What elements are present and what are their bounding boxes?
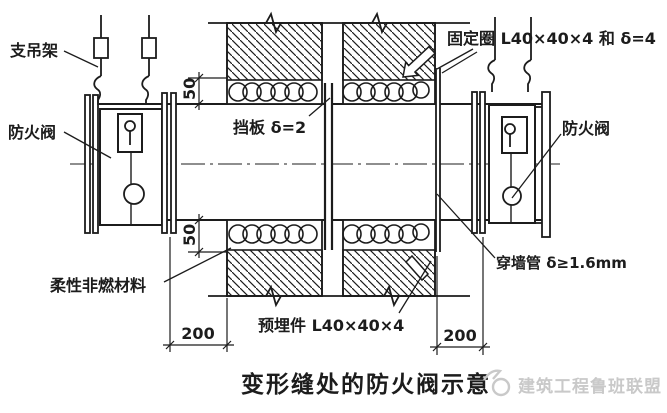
leader-hanger [64, 51, 98, 67]
flange [171, 93, 176, 233]
hanger-rod [142, 15, 156, 105]
flange [480, 92, 485, 233]
label-fire-damper-left: 防火阀 [8, 123, 56, 142]
fire-damper-left-assembly [85, 93, 176, 233]
label-fire-damper-right: 防火阀 [562, 119, 610, 138]
label-wall-pipe: 穿墙管 δ≥1.6mm [496, 254, 627, 272]
baffle-plate [324, 83, 333, 250]
fire-damper-diagram: 50 50 200 200 支吊架 防火阀 挡板 δ=2 固定圈 L40 [0, 0, 667, 413]
keyhole-icon [125, 121, 135, 131]
wall-hatch [227, 250, 322, 296]
flange [542, 92, 550, 237]
flange [472, 92, 477, 233]
watermark-text: 建筑工程鲁班联盟 [518, 376, 662, 397]
keyhole-icon [505, 124, 515, 134]
dim-top-50: 50 [180, 78, 199, 100]
wall-hatch [343, 23, 435, 80]
drawing-sheet: 50 50 200 200 支吊架 防火阀 挡板 δ=2 固定圈 L40 [0, 0, 667, 413]
hanger-hook-icon [524, 60, 531, 92]
spindle-circle [124, 184, 144, 204]
label-hanger: 支吊架 [9, 41, 58, 60]
fixing-ring-plate [436, 68, 440, 252]
dim-right-200: 200 [443, 326, 476, 345]
actuator-box [502, 117, 527, 153]
hanger-hook-icon [488, 60, 495, 92]
leader-fixing-ring [442, 52, 477, 73]
drawing-title: 变形缝处的防火阀示意 [241, 371, 491, 398]
flange [93, 95, 98, 233]
dim-left-200: 200 [181, 324, 214, 343]
label-flexible-material: 柔性非燃材料 [49, 276, 146, 295]
leader-fixing-ring [437, 49, 473, 69]
label-baffle: 挡板 δ=2 [233, 118, 306, 137]
flange [85, 95, 90, 233]
label-embedded-part: 预埋件 L40×40×4 [258, 316, 404, 335]
dim-bottom-50: 50 [180, 224, 199, 246]
leader-wall-pipe [437, 194, 495, 258]
label-fixing-ring: 固定圈 L40×40×4 和 δ=4 [447, 29, 656, 48]
flange [162, 93, 167, 233]
hanger-rod [94, 15, 108, 105]
hanger-hook-icon [142, 76, 149, 105]
wall-hatch [227, 23, 322, 80]
